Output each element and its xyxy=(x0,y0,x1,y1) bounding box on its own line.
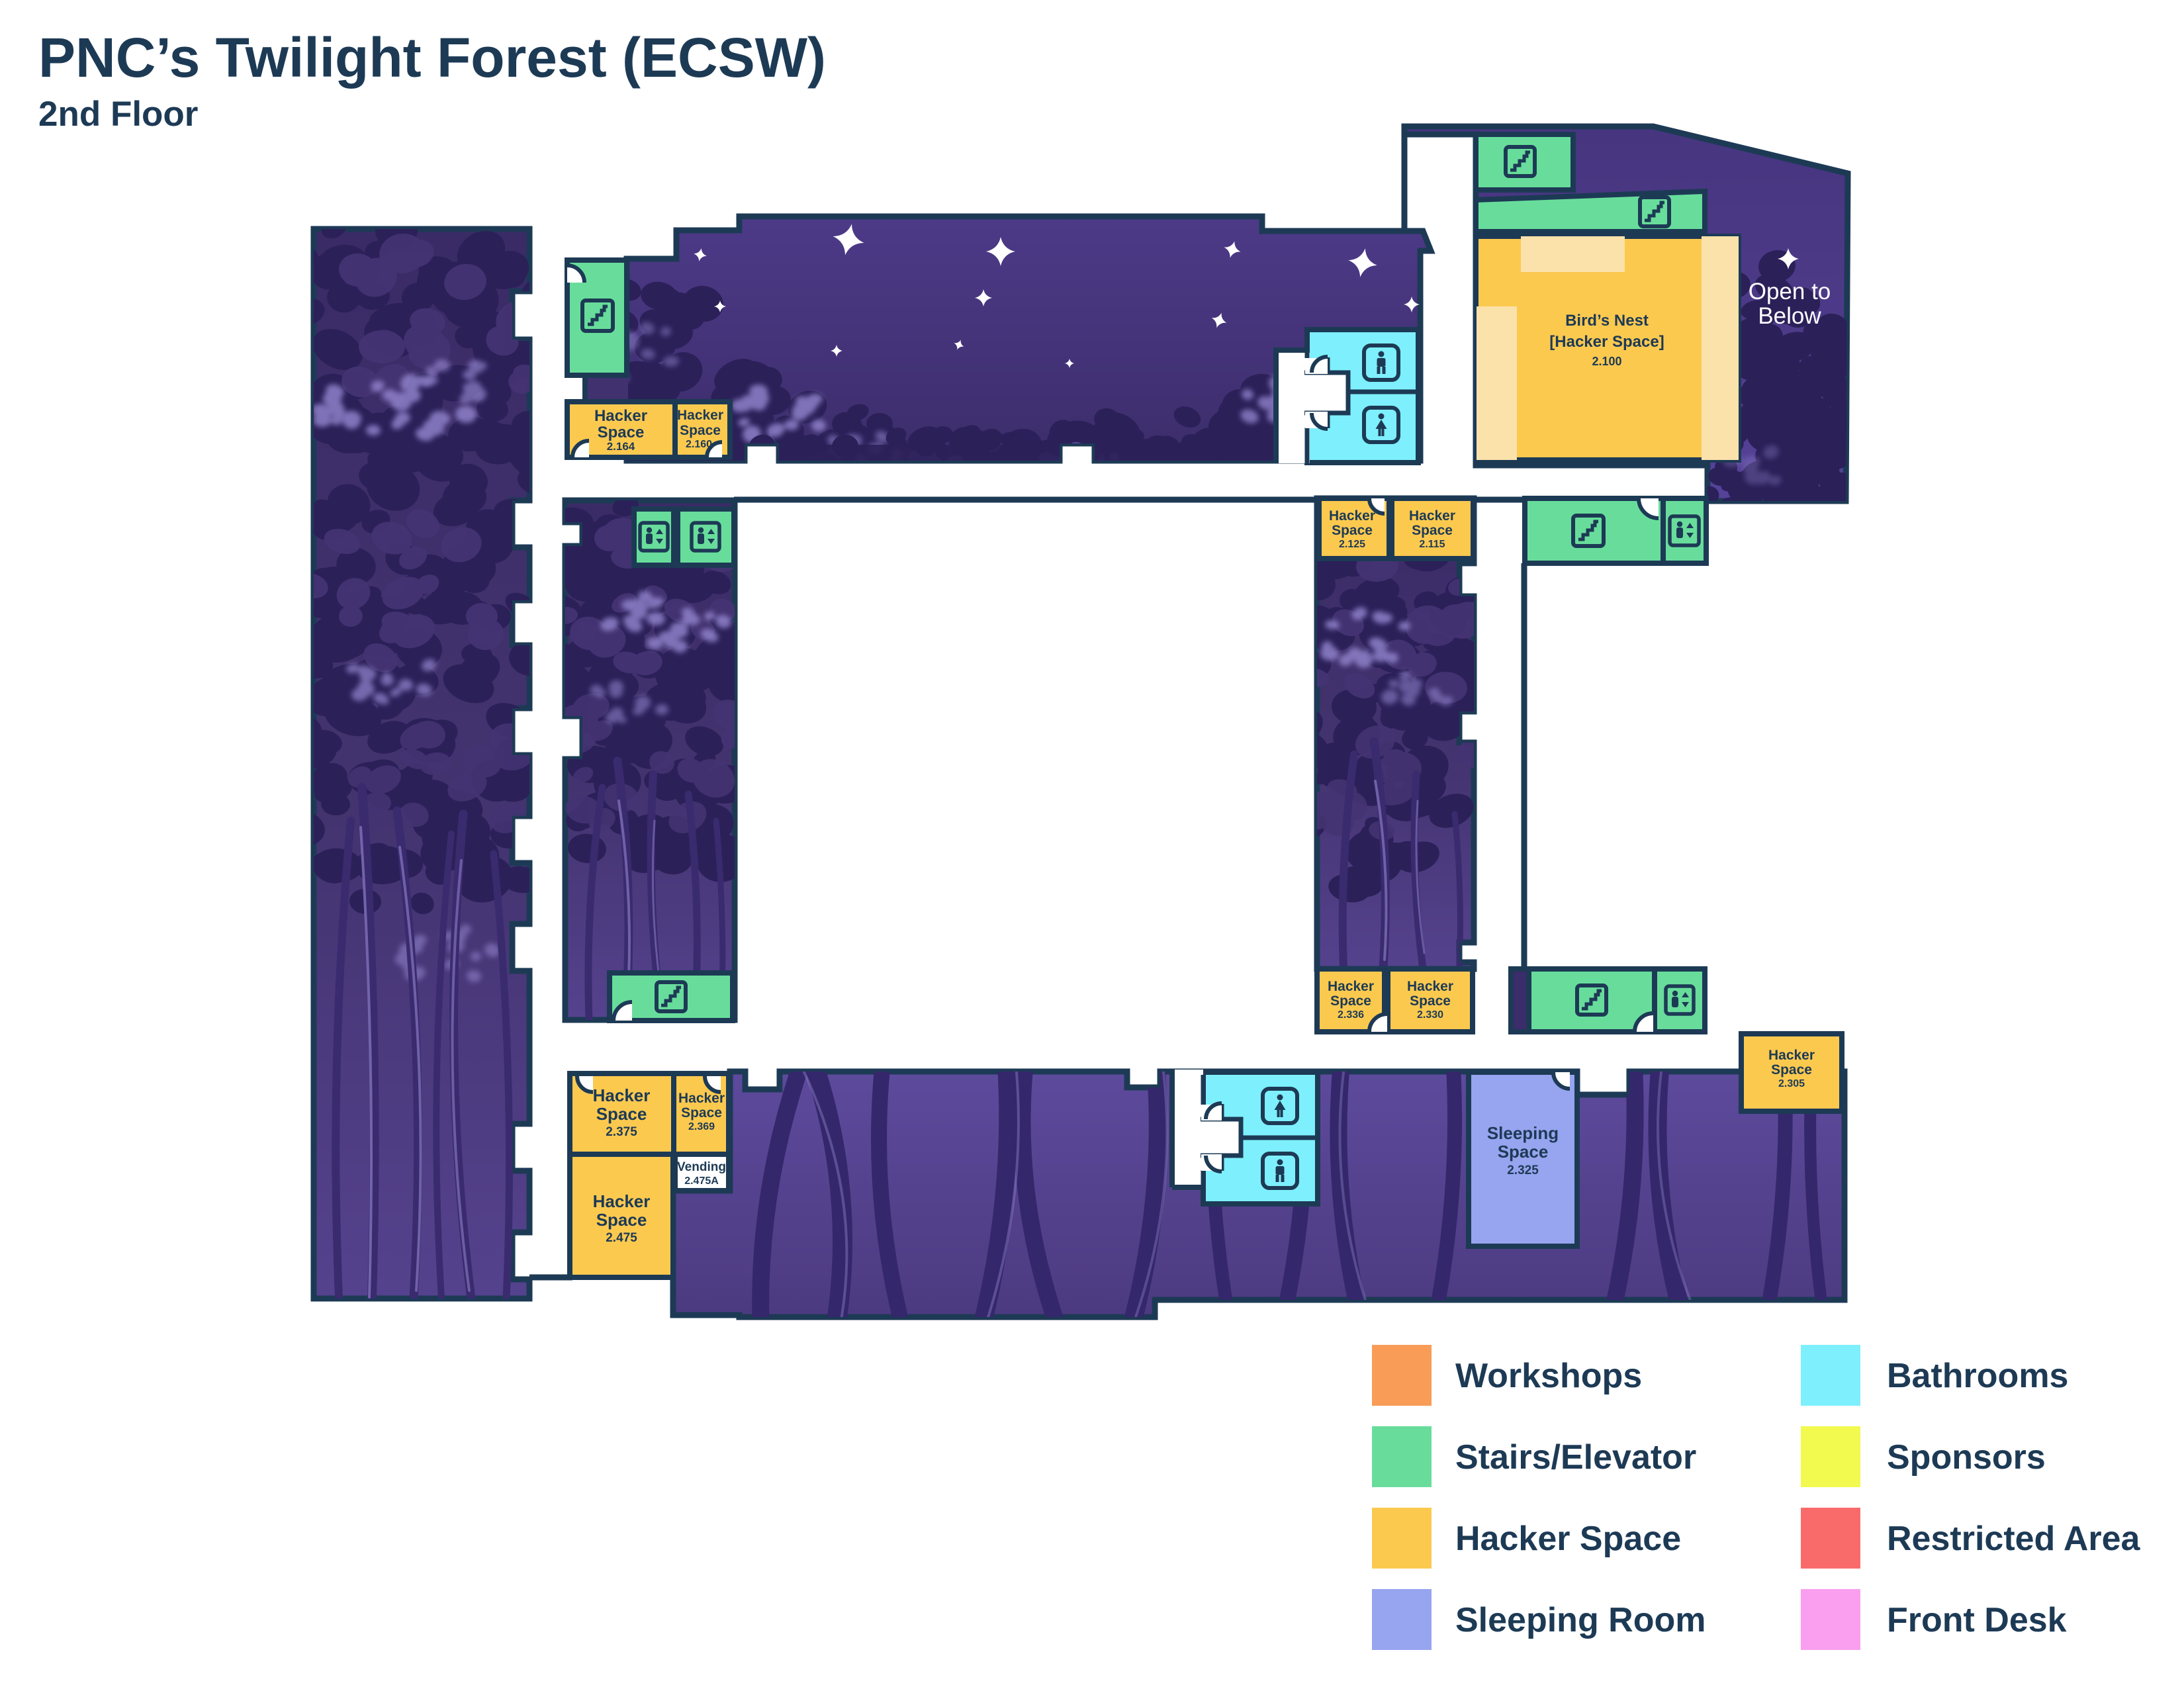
svg-text:Hacker Space: Hacker Space xyxy=(1455,1520,1681,1558)
svg-text:2.336: 2.336 xyxy=(1338,1009,1364,1021)
svg-text:Sleeping Room: Sleeping Room xyxy=(1455,1601,1706,1639)
svg-text:Stairs/Elevator: Stairs/Elevator xyxy=(1455,1438,1696,1477)
svg-text:Space: Space xyxy=(1412,523,1453,538)
svg-text:Space: Space xyxy=(680,423,721,438)
svg-text:Bathrooms: Bathrooms xyxy=(1887,1357,2068,1395)
svg-text:Front Desk: Front Desk xyxy=(1887,1601,2067,1639)
svg-text:Space: Space xyxy=(1410,993,1451,1009)
svg-text:Hacker: Hacker xyxy=(593,1191,651,1211)
svg-text:Hacker: Hacker xyxy=(593,1085,651,1105)
svg-text:2.369: 2.369 xyxy=(688,1121,715,1132)
svg-text:[Hacker Space]: [Hacker Space] xyxy=(1549,333,1664,351)
svg-text:Hacker: Hacker xyxy=(1409,508,1455,524)
svg-text:2.375: 2.375 xyxy=(606,1125,637,1139)
svg-text:Space: Space xyxy=(1332,523,1373,538)
svg-text:2.305: 2.305 xyxy=(1778,1078,1805,1089)
svg-text:Space: Space xyxy=(596,1210,647,1230)
svg-text:Restricted Area: Restricted Area xyxy=(1887,1520,2141,1558)
svg-text:Hacker: Hacker xyxy=(1768,1048,1815,1063)
svg-text:Open to: Open to xyxy=(1749,279,1831,304)
svg-text:Space: Space xyxy=(1330,993,1371,1009)
svg-text:Space: Space xyxy=(681,1105,722,1120)
svg-text:Hacker: Hacker xyxy=(677,408,723,423)
svg-text:Vending: Vending xyxy=(677,1160,726,1174)
svg-text:Hacker: Hacker xyxy=(1407,979,1453,994)
svg-text:Hacker: Hacker xyxy=(1328,979,1374,994)
svg-text:Sponsors: Sponsors xyxy=(1887,1438,2046,1477)
svg-text:Space: Space xyxy=(1498,1142,1549,1162)
svg-text:2.115: 2.115 xyxy=(1419,539,1445,550)
svg-text:2.475A: 2.475A xyxy=(684,1175,719,1187)
svg-text:2.325: 2.325 xyxy=(1507,1164,1539,1177)
svg-text:Hacker: Hacker xyxy=(594,407,647,425)
svg-text:Hacker: Hacker xyxy=(1329,508,1375,524)
svg-text:2nd Floor: 2nd Floor xyxy=(38,95,198,134)
svg-text:PNC’s Twilight Forest (ECSW): PNC’s Twilight Forest (ECSW) xyxy=(38,26,826,89)
svg-text:Below: Below xyxy=(1758,303,1821,329)
svg-text:2.100: 2.100 xyxy=(1592,355,1621,368)
svg-text:Sleeping: Sleeping xyxy=(1487,1123,1559,1143)
svg-text:Space: Space xyxy=(1771,1062,1812,1077)
svg-text:2.125: 2.125 xyxy=(1339,539,1365,550)
svg-text:2.164: 2.164 xyxy=(607,440,635,453)
svg-text:2.330: 2.330 xyxy=(1417,1009,1443,1021)
svg-text:Space: Space xyxy=(598,424,645,441)
svg-text:Space: Space xyxy=(596,1104,647,1124)
svg-text:Bird’s Nest: Bird’s Nest xyxy=(1565,312,1649,330)
svg-text:Workshops: Workshops xyxy=(1455,1357,1642,1395)
svg-text:2.475: 2.475 xyxy=(606,1231,637,1245)
